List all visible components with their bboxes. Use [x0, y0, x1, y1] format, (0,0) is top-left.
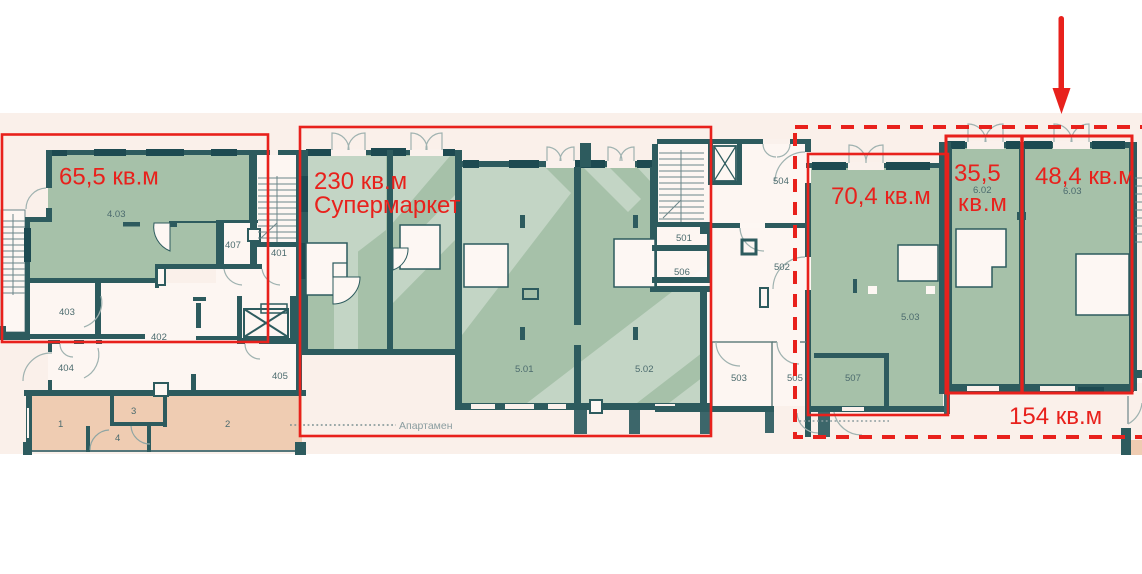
svg-text:507: 507	[845, 373, 861, 384]
svg-text:1: 1	[58, 419, 63, 430]
svg-text:404: 404	[58, 363, 74, 374]
svg-text:5.03: 5.03	[901, 312, 920, 323]
svg-text:4: 4	[115, 433, 120, 444]
svg-text:70,4 кв.м: 70,4 кв.м	[831, 183, 931, 210]
svg-text:403: 403	[59, 307, 75, 318]
svg-text:501: 501	[676, 233, 692, 244]
svg-text:5.02: 5.02	[635, 364, 654, 375]
svg-text:3: 3	[131, 406, 136, 417]
svg-text:35,5: 35,5	[954, 160, 1001, 187]
svg-text:2: 2	[225, 419, 230, 430]
svg-text:Супермаркет: Супермаркет	[314, 192, 461, 219]
svg-text:230 кв.м: 230 кв.м	[314, 168, 407, 195]
svg-text:503: 503	[731, 373, 747, 384]
svg-text:401: 401	[271, 248, 287, 259]
svg-text:кв.м: кв.м	[958, 190, 1008, 217]
svg-text:5.01: 5.01	[515, 364, 534, 375]
svg-text:154 кв.м: 154 кв.м	[1009, 403, 1102, 430]
svg-text:502: 502	[774, 262, 790, 273]
svg-text:4.03: 4.03	[107, 209, 126, 220]
svg-text:504: 504	[773, 176, 789, 187]
svg-text:65,5 кв.м: 65,5 кв.м	[59, 164, 159, 191]
svg-text:48,4 кв.м: 48,4 кв.м	[1035, 163, 1135, 190]
svg-text:Апартамен: Апартамен	[399, 420, 453, 432]
svg-text:506: 506	[674, 267, 690, 278]
svg-text:405: 405	[272, 371, 288, 382]
svg-text:407: 407	[225, 240, 241, 251]
